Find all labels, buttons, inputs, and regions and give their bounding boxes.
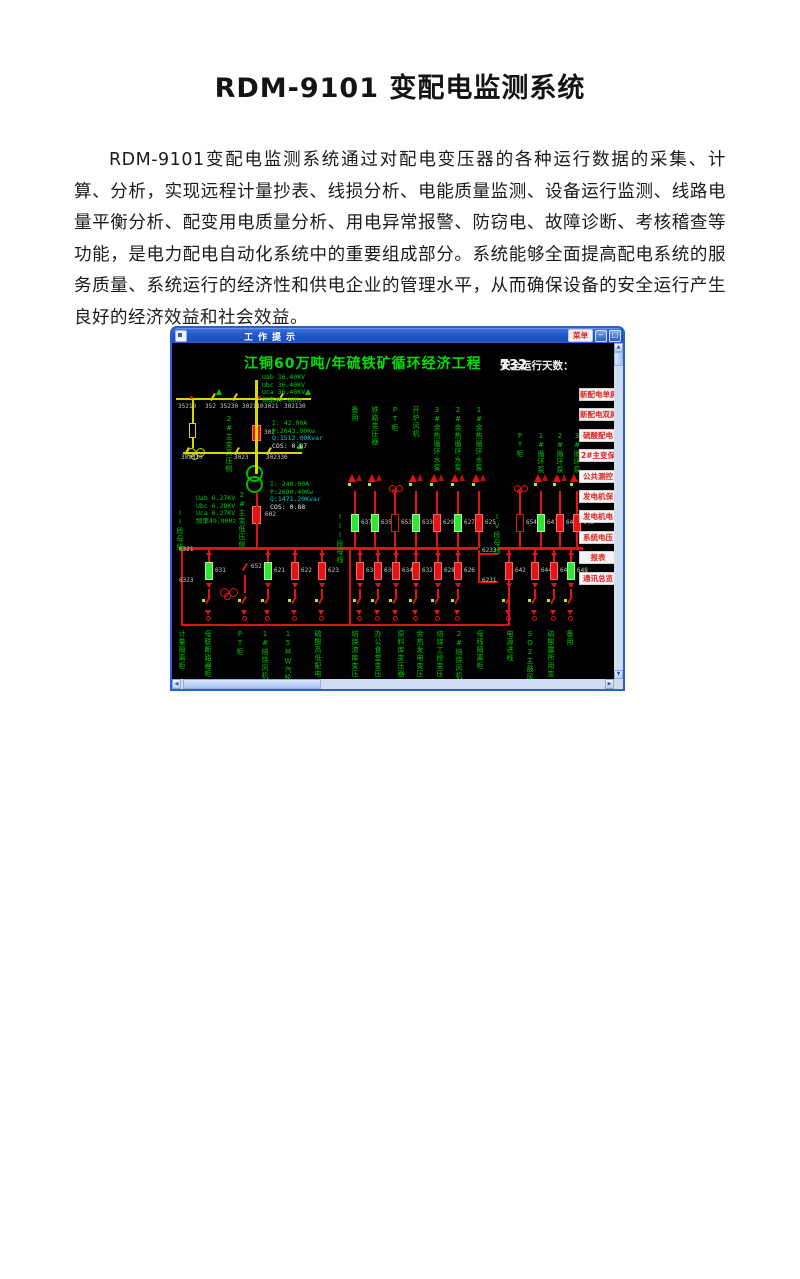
disconnect-switch-icon: [454, 596, 460, 604]
feeder-label: PT柜: [516, 432, 524, 458]
earth-symbol: [435, 616, 440, 621]
side-button-1[interactable]: 新配电单屏: [579, 388, 614, 401]
flow-arrow-icon: [206, 553, 212, 558]
side-button-2[interactable]: 新配电双屏: [579, 408, 614, 421]
breaker-642[interactable]: [505, 562, 513, 580]
breaker-num-label: 653: [401, 520, 412, 526]
breaker-646[interactable]: [550, 562, 558, 580]
flow-arrow-icon: [393, 583, 399, 588]
feeder-switch-icon: [408, 469, 424, 489]
scroll-right-arrow-icon[interactable]: ▶: [605, 679, 614, 689]
breaker-629[interactable]: [433, 514, 441, 532]
disconnect-id-label: 6231: [482, 578, 496, 584]
scrollbar-corner: [614, 679, 623, 689]
disconnect-switch-icon: [205, 596, 211, 604]
switch-id-label: 35210: [178, 404, 196, 410]
flow-arrow-icon: [550, 610, 556, 615]
breaker-632[interactable]: [412, 562, 420, 580]
breaker-num-label: 623: [328, 568, 339, 574]
earth-symbol: [375, 616, 380, 621]
vertical-scroll-thumb[interactable]: [614, 352, 623, 366]
switch-indicator: [368, 483, 371, 486]
breaker-637[interactable]: [351, 514, 359, 532]
transformer-hv-side-label: 2#主变高压侧: [225, 415, 233, 473]
breaker-653[interactable]: [391, 514, 399, 532]
cubicle-label: SO2主鼓风机: [526, 630, 534, 679]
breaker-654[interactable]: [516, 514, 524, 532]
cubicle-label: 15MW汽轮发电: [284, 630, 292, 679]
flow-arrow-icon: [531, 610, 537, 615]
switch-id-label: 35230: [220, 404, 238, 410]
safe-days-unit: 天: [500, 358, 511, 373]
scroll-left-arrow-icon[interactable]: ◀: [172, 679, 181, 689]
flow-arrow-icon: [506, 583, 512, 588]
restore-button[interactable]: □: [609, 330, 621, 342]
feeder-switch-icon: [471, 469, 487, 489]
side-button-3[interactable]: 硫酸配电: [579, 429, 614, 442]
switch-id-label: 302310: [181, 455, 203, 461]
breaker-num-label: 654: [526, 520, 537, 526]
menu-button[interactable]: 菜单: [568, 329, 593, 342]
cubicle-label: 电源进线: [506, 630, 514, 662]
cubicle-label: 原料库变压器: [397, 630, 405, 678]
flow-arrow-icon: [375, 553, 381, 558]
intro-paragraph: RDM-9101变配电监测系统通过对配电变压器的各种运行数据的采集、计算、分析，…: [74, 145, 726, 334]
feeder-label: 开炉风机: [412, 406, 420, 438]
feeder-label: 2#循环泵: [556, 432, 564, 474]
circuit-line: [192, 438, 194, 448]
diagram-title: 江铜60万吨/年硫铁矿循环经济工程: [244, 353, 482, 373]
flow-arrow-icon: [374, 610, 380, 615]
breaker-num-label: 633: [422, 520, 433, 526]
circuit-line: [256, 493, 258, 548]
scada-window: 工作提示 菜单 − □ 江铜60万吨/年硫铁矿循环经济工程 安全运行天数： 73…: [170, 326, 625, 691]
disconnect-id-label: 6323: [179, 578, 193, 584]
breaker-num-label: 626: [464, 568, 475, 574]
cubicle-label: 1#焙烧风机: [261, 630, 269, 679]
lv-voltage-reading: Uca 6.27KV: [196, 510, 235, 517]
earth-symbol: [206, 616, 211, 621]
earth-symbol: [568, 616, 573, 621]
switch-id-label: 302110: [242, 404, 264, 410]
flow-arrow-icon: [265, 583, 271, 588]
circuit-line: [181, 624, 510, 626]
switch-id-label: 302130: [284, 404, 306, 410]
flow-arrow-icon: [292, 583, 298, 588]
vertical-scrollbar[interactable]: ▲ ▼: [614, 343, 623, 679]
switch-mark: [305, 389, 311, 395]
switch-indicator: [553, 483, 556, 486]
pt-symbol: [392, 489, 397, 494]
earth-symbol: [265, 616, 270, 621]
breaker-626[interactable]: [454, 562, 462, 580]
horizontal-scroll-thumb[interactable]: [183, 679, 321, 689]
disconnect-switch-icon: [356, 596, 362, 604]
hv-voltage-reading: Uab 36.40KV: [262, 374, 305, 381]
earth-symbol: [532, 616, 537, 621]
fuse-symbol: [189, 423, 196, 438]
breaker-num-label: 621: [274, 568, 285, 574]
cubicle-label: 硫酸高低配电: [314, 630, 322, 678]
lv-voltage-reading: Uab 6.27KV: [196, 495, 235, 502]
switch-indicator: [472, 483, 475, 486]
breaker-631[interactable]: [205, 562, 213, 580]
disconnect-switch-icon: [318, 596, 324, 604]
flow-arrow-icon: [375, 583, 381, 588]
side-button-4[interactable]: 2#主变保: [579, 449, 614, 462]
flow-arrow-icon: [568, 583, 574, 588]
breaker-621[interactable]: [264, 562, 272, 580]
flow-arrow-icon: [506, 553, 512, 558]
scroll-down-arrow-icon[interactable]: ▼: [614, 670, 623, 679]
lv-voltage-reading: 频率49.90Hz: [196, 518, 236, 525]
circuit-line: [181, 550, 183, 625]
switch-id-label: 3021: [264, 404, 278, 410]
cubicle-label: 焙烧渣库变压: [351, 630, 359, 678]
cubicle-label: 母线隔离柜: [476, 630, 484, 670]
disconnect-switch-icon: [434, 596, 440, 604]
feeder-label: 1#余热循环水泵: [475, 406, 483, 472]
flow-arrow-icon: [265, 553, 271, 558]
disconnect-switch-icon: [567, 596, 573, 604]
side-button-5[interactable]: 公共测控: [579, 470, 614, 483]
switch-indicator: [570, 483, 573, 486]
breaker-num-label: 625: [485, 520, 496, 526]
lv-pt-symbol: [224, 593, 231, 600]
hv-voltage-reading: Uca 36.40KV: [262, 389, 305, 396]
cubicle-label: PT柜: [236, 630, 244, 656]
breaker-634[interactable]: [392, 562, 400, 580]
flow-arrow-icon: [205, 610, 211, 615]
breaker-635[interactable]: [371, 514, 379, 532]
flow-arrow-icon: [319, 553, 325, 558]
side-button-6[interactable]: 发电机保: [579, 490, 614, 503]
breaker-num-label: 632: [422, 568, 433, 574]
flow-arrow-icon: [455, 583, 461, 588]
flow-arrow-icon: [435, 553, 441, 558]
scroll-up-arrow-icon[interactable]: ▲: [614, 343, 623, 352]
breaker-622[interactable]: [291, 562, 299, 580]
lv-meter-line: Q:1471.20Kvar: [270, 496, 321, 503]
breaker-num-label: 631: [215, 568, 226, 574]
breaker-638[interactable]: [356, 562, 364, 580]
flow-arrow-icon: [392, 610, 398, 615]
earth-symbol: [551, 616, 556, 621]
scada-diagram: 江铜60万吨/年硫铁矿循环经济工程 安全运行天数： 732 天 2#主变高压侧 …: [172, 343, 614, 679]
disconnect-switch-icon: [531, 596, 537, 604]
feeder-label: PT柜: [391, 406, 399, 432]
switch-mark: [258, 396, 261, 399]
disconnect-switch-icon: [291, 596, 297, 604]
disconnect-switch-icon: [550, 596, 556, 604]
flow-arrow-icon: [434, 610, 440, 615]
switch-id-label: 3023: [234, 455, 248, 461]
earth-symbol: [413, 616, 418, 621]
earth-symbol: [319, 616, 324, 621]
flow-arrow-icon: [532, 553, 538, 558]
breaker-num-label: 642: [515, 568, 526, 574]
circuit-line: [179, 547, 478, 550]
hv-meter-line: COS: 0.87: [272, 443, 307, 450]
breaker-627[interactable]: [454, 514, 462, 532]
feeder-switch-icon: [347, 469, 363, 489]
side-button-9[interactable]: 报表: [579, 551, 614, 564]
cubicle-label: 计量隔离柜: [178, 630, 186, 670]
flow-arrow-icon: [319, 583, 325, 588]
breaker-643[interactable]: [556, 514, 564, 532]
switch-mark: [190, 396, 193, 399]
feeder-switch-icon: [429, 469, 445, 489]
flow-arrow-icon: [551, 583, 557, 588]
breaker-644[interactable]: [531, 562, 539, 580]
switch-indicator: [534, 483, 537, 486]
page-title: RDM-9101 变配电监测系统: [0, 66, 800, 105]
earth-symbol: [292, 616, 297, 621]
feeder-label: 3#余热循环水泵: [433, 406, 441, 472]
breaker-num-label: 652: [251, 564, 262, 570]
hv-meter-line: Q:1512.00Kvar: [272, 435, 323, 442]
disconnect-switch-icon: [264, 596, 270, 604]
cubicle-label: 2#焙烧风机: [455, 630, 463, 679]
switch-mark: [216, 389, 222, 395]
bus-section-label: II段母线: [176, 509, 184, 551]
breaker-num-label: 622: [301, 568, 312, 574]
pt-symbol: [517, 489, 522, 494]
breaker-628[interactable]: [434, 562, 442, 580]
earth-symbol: [393, 616, 398, 621]
flow-arrow-icon: [551, 553, 557, 558]
cubicle-label: 母联断路器柜: [204, 630, 212, 678]
breaker-num-label: 629: [443, 520, 454, 526]
flow-arrow-icon: [413, 583, 419, 588]
breaker-636[interactable]: [374, 562, 382, 580]
earth-symbol: [506, 616, 511, 621]
flow-arrow-icon: [206, 583, 212, 588]
flow-arrow-icon: [455, 553, 461, 558]
feeder-line: [244, 575, 246, 593]
side-button-7[interactable]: 发电机电: [579, 510, 614, 523]
disconnect-switch-icon: [374, 596, 380, 604]
switch-indicator: [409, 483, 412, 486]
disconnect-switch-icon: [412, 596, 418, 604]
feeder-label: 1#循环泵: [537, 432, 545, 474]
flow-arrow-icon: [318, 610, 324, 615]
cubicle-label: 余热发电变压: [416, 630, 424, 678]
side-button-8[interactable]: 系统电压: [579, 531, 614, 544]
breaker-633[interactable]: [412, 514, 420, 532]
lv-meter-line: COS: 0.88: [270, 504, 305, 511]
flow-arrow-icon: [412, 610, 418, 615]
disconnect-switch-icon: [392, 596, 398, 604]
flow-arrow-icon: [241, 610, 247, 615]
earth-symbol: [455, 616, 460, 621]
feeder-label: 备用: [351, 406, 359, 422]
transformer-lv-side-label: 2#主变低压侧: [238, 491, 246, 549]
flow-arrow-icon: [393, 553, 399, 558]
switch-indicator: [430, 483, 433, 486]
window-icon: [175, 330, 187, 342]
switch-id-label: 352: [205, 404, 216, 410]
flow-arrow-icon: [292, 553, 298, 558]
switch-indicator: [348, 483, 351, 486]
flow-arrow-icon: [505, 610, 511, 615]
feeder-label: 2#余热循环水泵: [454, 406, 462, 472]
flow-arrow-icon: [357, 583, 363, 588]
cubicle-label: 硫酸露所用变: [547, 630, 555, 678]
switch-id-label: 302330: [266, 455, 288, 461]
main-transformer-icon: [246, 476, 263, 493]
lv-meter-line: I: 240.00A: [270, 481, 309, 488]
window-title: 工作提示: [244, 330, 300, 343]
flow-arrow-icon: [356, 610, 362, 615]
breaker-648[interactable]: [567, 562, 575, 580]
breaker-602-label: 602: [265, 512, 276, 518]
flow-arrow-icon: [413, 553, 419, 558]
cubicle-label: 备用: [566, 630, 574, 646]
bus-section-label: III段母线: [336, 513, 344, 564]
tie-switch-icon: [242, 563, 248, 571]
feeder-switch-icon: [450, 469, 466, 489]
disconnect-switch-icon: [241, 596, 247, 604]
flow-arrow-icon: [568, 553, 574, 558]
flow-arrow-icon: [454, 610, 460, 615]
flow-arrow-icon: [567, 610, 573, 615]
switch-indicator: [451, 483, 454, 486]
window-titlebar[interactable]: 工作提示 菜单 − □: [172, 328, 623, 343]
breaker-641[interactable]: [537, 514, 545, 532]
circuit-line: [349, 550, 351, 625]
hv-meter-line: I: 42.00A: [272, 420, 307, 427]
flow-arrow-icon: [532, 583, 538, 588]
flow-arrow-icon: [291, 610, 297, 615]
breaker-623[interactable]: [318, 562, 326, 580]
cubicle-label: 焙烧工段变压: [436, 630, 444, 678]
breaker-625[interactable]: [475, 514, 483, 532]
flow-arrow-icon: [357, 553, 363, 558]
breaker-num-label: 627: [464, 520, 475, 526]
feeder-switch-icon: [367, 469, 383, 489]
horizontal-scrollbar[interactable]: ◀ ▶: [172, 679, 614, 689]
cubicle-label: 办公食堂变压: [374, 630, 382, 678]
minimize-button[interactable]: −: [595, 330, 607, 342]
flow-arrow-icon: [435, 583, 441, 588]
side-button-10[interactable]: 通讯总览: [579, 572, 614, 585]
circuit-line: [255, 380, 258, 474]
earth-symbol: [357, 616, 362, 621]
feeder-label: 铁路变压器: [371, 406, 379, 446]
earth-symbol: [242, 616, 247, 621]
flow-arrow-icon: [264, 610, 270, 615]
